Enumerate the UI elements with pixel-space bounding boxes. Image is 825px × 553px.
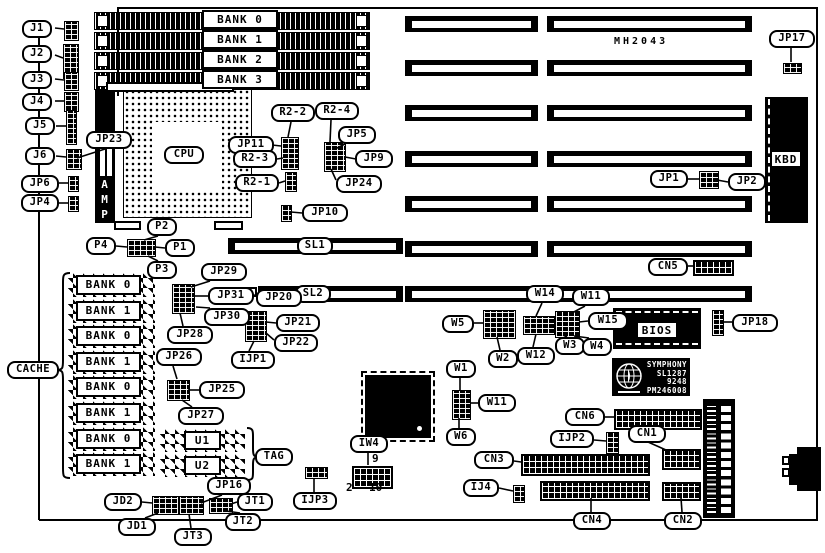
simm-latch xyxy=(97,35,108,47)
callout-jp5: JP5 xyxy=(338,126,376,144)
power-connector xyxy=(703,399,735,518)
callout-jp24: JP24 xyxy=(336,175,382,193)
leader-line xyxy=(56,156,66,157)
symphony-chip: SYMPHONY SL1287 9248 PM246008 xyxy=(612,358,690,396)
connector-cn3-connector xyxy=(521,454,650,476)
callout-jp6: JP6 xyxy=(21,175,59,193)
leader-line xyxy=(189,514,191,528)
cache-bank-chip: BANK 1 xyxy=(68,350,155,374)
callout-jp25: JP25 xyxy=(199,381,245,399)
board-edge-top xyxy=(117,7,818,9)
tag-ram-label: U2 xyxy=(184,456,221,475)
callout-jp30: JP30 xyxy=(204,308,250,326)
callout-jp21: JP21 xyxy=(276,314,320,332)
jumper-j4-block xyxy=(64,92,79,112)
cache-bank-label: BANK 1 xyxy=(76,301,141,321)
jumper-ijp2-block xyxy=(606,432,619,454)
callout-cn2: CN2 xyxy=(664,512,702,530)
motherboard-diagram: CPU AMP KBD BIOS SYMPHONY SL1287 9248 PM… xyxy=(0,0,825,553)
bios-chip-edge-top xyxy=(616,311,698,313)
callout-j4: J4 xyxy=(22,93,52,111)
jumper-j6-jp23-block xyxy=(66,149,82,170)
simm-latch xyxy=(356,75,367,87)
expansion-slot-strip xyxy=(554,21,745,28)
callout-r2-1: R2-1 xyxy=(235,174,279,192)
callout-jd1: JD1 xyxy=(118,518,156,536)
callout-w11: W11 xyxy=(478,394,516,412)
leader-line xyxy=(291,212,302,213)
callout-cn4: CN4 xyxy=(573,512,611,530)
connector-cn1-connector xyxy=(662,449,701,470)
pin-number-text: 2 xyxy=(346,481,353,494)
jumper-jp10-block xyxy=(281,205,292,222)
leader-line xyxy=(55,55,63,58)
cache-bank-chip: BANK 1 xyxy=(68,299,155,323)
keyboard-din-tab xyxy=(789,454,798,485)
leader-line xyxy=(180,313,183,326)
cache-bank-chip: BANK 0 xyxy=(68,324,155,348)
jumper-jd2-jd1-block xyxy=(152,496,179,515)
callout-j2: J2 xyxy=(22,45,52,63)
simm-latch xyxy=(356,35,367,47)
callout-jp22: JP22 xyxy=(274,334,318,352)
callout-w3: W3 xyxy=(555,337,585,355)
callout-jp9: JP9 xyxy=(355,150,393,168)
cache-bank-chip: BANK 0 xyxy=(68,273,155,297)
jumper-w15-w3-w4-block xyxy=(555,311,580,338)
expansion-slot-strip xyxy=(554,110,745,117)
leader-line xyxy=(579,321,588,322)
power-connector-pins-right xyxy=(721,404,731,513)
leader-line xyxy=(155,247,165,248)
callout-ijp2: IJP2 xyxy=(550,430,594,448)
symphony-chip-underline xyxy=(618,391,640,393)
cpu-socket-tab-left xyxy=(114,221,141,230)
expansion-slot-strip xyxy=(412,21,531,28)
expansion-slot xyxy=(405,241,538,257)
expansion-slot xyxy=(547,16,752,32)
callout-jp27: JP27 xyxy=(178,407,224,425)
callout-p3: P3 xyxy=(147,261,177,279)
callout-jd2: JD2 xyxy=(104,493,142,511)
simm-latch xyxy=(356,15,367,27)
leader-line xyxy=(266,322,276,323)
callout-jt1: JT1 xyxy=(237,493,273,511)
callout-j3: J3 xyxy=(22,71,52,89)
leader-line xyxy=(533,334,536,347)
amp-slot-1 xyxy=(100,146,105,176)
jumper-w14-w12-block xyxy=(523,316,555,335)
callout-ijp1: IJP1 xyxy=(231,351,275,369)
jumper-jp11-r2-block xyxy=(281,137,299,170)
expansion-slot xyxy=(405,151,538,167)
globe-icon xyxy=(615,362,643,390)
jumper-jp1-jp2-block xyxy=(699,171,719,189)
power-connector-pins-left xyxy=(707,404,716,513)
callout-w4: W4 xyxy=(582,338,612,356)
jumper-r2-1-block xyxy=(285,172,297,192)
cache-bank-label: BANK 0 xyxy=(76,429,141,449)
symphony-chip-text: SYMPHONY SL1287 9248 PM246008 xyxy=(647,361,687,395)
simm-latch xyxy=(97,55,108,67)
keyboard-din-pin-1 xyxy=(782,456,790,465)
expansion-slot xyxy=(547,241,752,257)
callout-j5: J5 xyxy=(25,117,55,135)
expansion-slot xyxy=(405,196,538,212)
cache-bank-label: BANK 1 xyxy=(76,454,141,474)
jumper-w5-block xyxy=(483,310,516,339)
leader-line xyxy=(173,366,177,379)
callout-w14: W14 xyxy=(526,285,564,303)
expansion-slot-strip xyxy=(412,110,531,117)
leader-line xyxy=(330,120,331,142)
jumper-ijp3-block xyxy=(305,467,328,479)
kbd-chip-label: KBD xyxy=(770,150,802,168)
simm-latch xyxy=(356,55,367,67)
cache-bank-chip: BANK 0 xyxy=(68,375,155,399)
memory-bank-label: BANK 2 xyxy=(202,50,278,69)
amp-chip-label: AMP xyxy=(98,178,111,223)
callout-jp2: JP2 xyxy=(728,173,766,191)
leader-line xyxy=(249,341,254,351)
leader-line xyxy=(55,79,64,80)
memory-bank-label: BANK 1 xyxy=(202,30,278,49)
jumper-jp5-jp9-jp24-block xyxy=(324,142,346,172)
leader-line xyxy=(55,28,64,29)
board-edge-right xyxy=(816,7,818,521)
pin-number-text: 10 xyxy=(369,481,382,494)
expansion-slot xyxy=(547,196,752,212)
callout-cn5: CN5 xyxy=(648,258,688,276)
callout-jp20: JP20 xyxy=(256,289,302,307)
jumper-jp17-block xyxy=(783,63,802,74)
jumper-ij4-block xyxy=(513,485,525,503)
jumper-w1-w11-w6-block xyxy=(452,390,471,420)
expansion-slot xyxy=(405,16,538,32)
expansion-slot-strip xyxy=(554,65,745,72)
tag-ram-label: U1 xyxy=(184,431,221,450)
leader-line xyxy=(182,400,192,407)
leader-line xyxy=(288,122,291,137)
callout-r2-4: R2-4 xyxy=(315,102,359,120)
callout-ij4: IJ4 xyxy=(463,479,499,497)
jumper-jp4-block xyxy=(68,196,79,212)
expansion-slot-strip xyxy=(554,156,745,163)
leader-line xyxy=(536,303,542,316)
expansion-slot xyxy=(547,105,752,121)
qfp-pin1-dot xyxy=(417,426,422,431)
callout-iw4: IW4 xyxy=(350,435,388,453)
expansion-slot xyxy=(405,105,538,121)
expansion-slot-strip xyxy=(412,201,531,208)
callout-jt2: JT2 xyxy=(225,513,261,531)
cache-bank-chip: BANK 1 xyxy=(68,401,155,425)
callout-w2: W2 xyxy=(488,350,518,368)
connector-cn5-connector xyxy=(693,260,734,276)
expansion-slot-strip xyxy=(554,246,745,253)
memory-bank-label: BANK 3 xyxy=(202,70,278,89)
callout-jp26: JP26 xyxy=(156,348,202,366)
cpu-label: CPU xyxy=(164,146,204,164)
callout-ijp3: IJP3 xyxy=(293,492,337,510)
board-model-text: MH2043 xyxy=(614,36,668,47)
callout-p2: P2 xyxy=(147,218,177,236)
cache-bank-chip: BANK 1 xyxy=(68,452,155,476)
memory-bank-label: BANK 0 xyxy=(202,10,278,29)
callout-j6: J6 xyxy=(25,147,55,165)
callout-jp23: JP23 xyxy=(86,131,132,149)
callout-tag: TAG xyxy=(255,448,293,466)
leader-line xyxy=(514,461,521,462)
callout-jp4: JP4 xyxy=(21,194,59,212)
simm-latch xyxy=(97,15,108,27)
jumper-jp6-block xyxy=(68,176,79,192)
connector-cn4-connector xyxy=(540,481,650,501)
cache-bank-label: BANK 0 xyxy=(76,326,141,346)
callout-cn6: CN6 xyxy=(565,408,605,426)
callout-jp31: JP31 xyxy=(208,287,254,305)
callout-jp17: JP17 xyxy=(769,30,815,48)
expansion-slot xyxy=(405,60,538,76)
cache-bank-label: BANK 0 xyxy=(76,377,141,397)
leader-line xyxy=(116,246,127,247)
keyboard-din-connector xyxy=(797,447,821,491)
callout-w1: W1 xyxy=(446,360,476,378)
jumper-jt3-jp16-block xyxy=(179,496,204,515)
connector-cn2-connector xyxy=(662,482,701,501)
expansion-slot-strip xyxy=(412,65,531,72)
keyboard-din-pin-2 xyxy=(782,468,790,477)
expansion-slot-strip xyxy=(412,156,531,163)
expansion-slot xyxy=(547,60,752,76)
callout-w5: W5 xyxy=(442,315,474,333)
callout-w15: W15 xyxy=(588,312,628,330)
callout-r2-3: R2-3 xyxy=(233,150,277,168)
jumper-j3-block xyxy=(64,72,79,91)
callout-p4: P4 xyxy=(86,237,116,255)
leader-line xyxy=(594,440,606,441)
expansion-slot-strip xyxy=(412,291,531,298)
jumper-jp26-jp25-jp27-block xyxy=(167,380,190,401)
callout-cn3: CN3 xyxy=(474,451,514,469)
qfp-chip xyxy=(365,375,431,438)
callout-w6: W6 xyxy=(446,428,476,446)
callout-jp1: JP1 xyxy=(650,170,688,188)
callout-j1: J1 xyxy=(22,20,52,38)
pin-number-text: 9 xyxy=(372,452,379,465)
cache-bank-label: BANK 1 xyxy=(76,403,141,423)
callout-r2-2: R2-2 xyxy=(271,104,315,122)
cache-bank-chip: BANK 0 xyxy=(68,427,155,451)
jumper-jt1-jt2-block xyxy=(209,498,233,514)
callout-w11: W11 xyxy=(572,288,610,306)
callout-jp10: JP10 xyxy=(302,204,348,222)
jumper-j1-block xyxy=(64,21,79,41)
expansion-slot-strip xyxy=(554,201,745,208)
callout-jp18: JP18 xyxy=(732,314,778,332)
expansion-slot-strip xyxy=(412,246,531,253)
jumper-jp29-jp31-jp30-jp28-block xyxy=(172,284,195,314)
cpu-socket-tab-right xyxy=(214,221,243,230)
callout-jp29: JP29 xyxy=(201,263,247,281)
leader-line xyxy=(499,488,513,491)
jumper-j5-block xyxy=(66,110,77,145)
leader-line xyxy=(266,333,274,340)
callout-cn1: CN1 xyxy=(628,425,666,443)
tag-ram-chip: U2 xyxy=(160,454,245,477)
jumper-jp18-block xyxy=(712,310,724,336)
callout-jt3: JT3 xyxy=(174,528,212,546)
callout-w12: W12 xyxy=(517,347,555,365)
cache-bank-label: BANK 0 xyxy=(76,275,141,295)
callout-jp28: JP28 xyxy=(167,326,213,344)
callout-sl1: SL1 xyxy=(297,237,333,255)
tag-ram-chip: U1 xyxy=(160,429,245,452)
leader-line xyxy=(142,502,152,503)
jumper-p1-p2-p3-p4-block xyxy=(127,239,156,257)
expansion-slot xyxy=(405,286,538,302)
bios-chip-label: BIOS xyxy=(636,321,678,339)
callout-cache: CACHE xyxy=(7,361,59,379)
callout-p1: P1 xyxy=(165,239,195,257)
cache-bank-label: BANK 1 xyxy=(76,352,141,372)
expansion-slot xyxy=(547,151,752,167)
bios-chip-edge-bottom xyxy=(616,343,698,345)
amp-slot-2 xyxy=(107,146,112,176)
